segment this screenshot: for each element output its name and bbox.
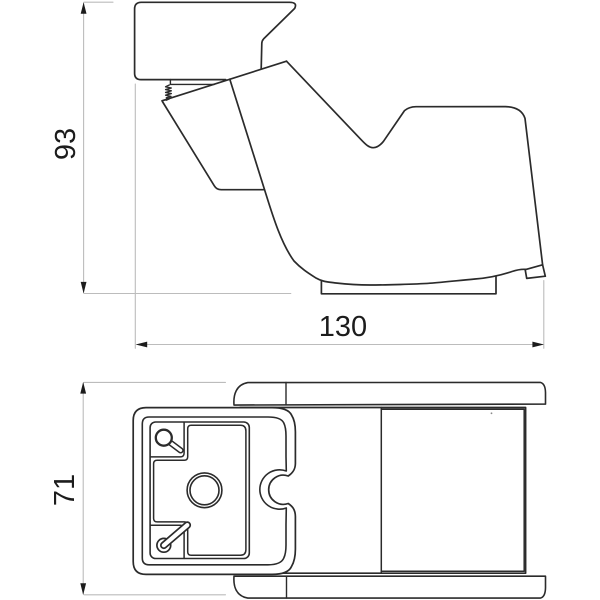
svg-text:130: 130 (319, 311, 367, 343)
svg-text:93: 93 (50, 128, 82, 160)
svg-text:71: 71 (49, 474, 81, 506)
